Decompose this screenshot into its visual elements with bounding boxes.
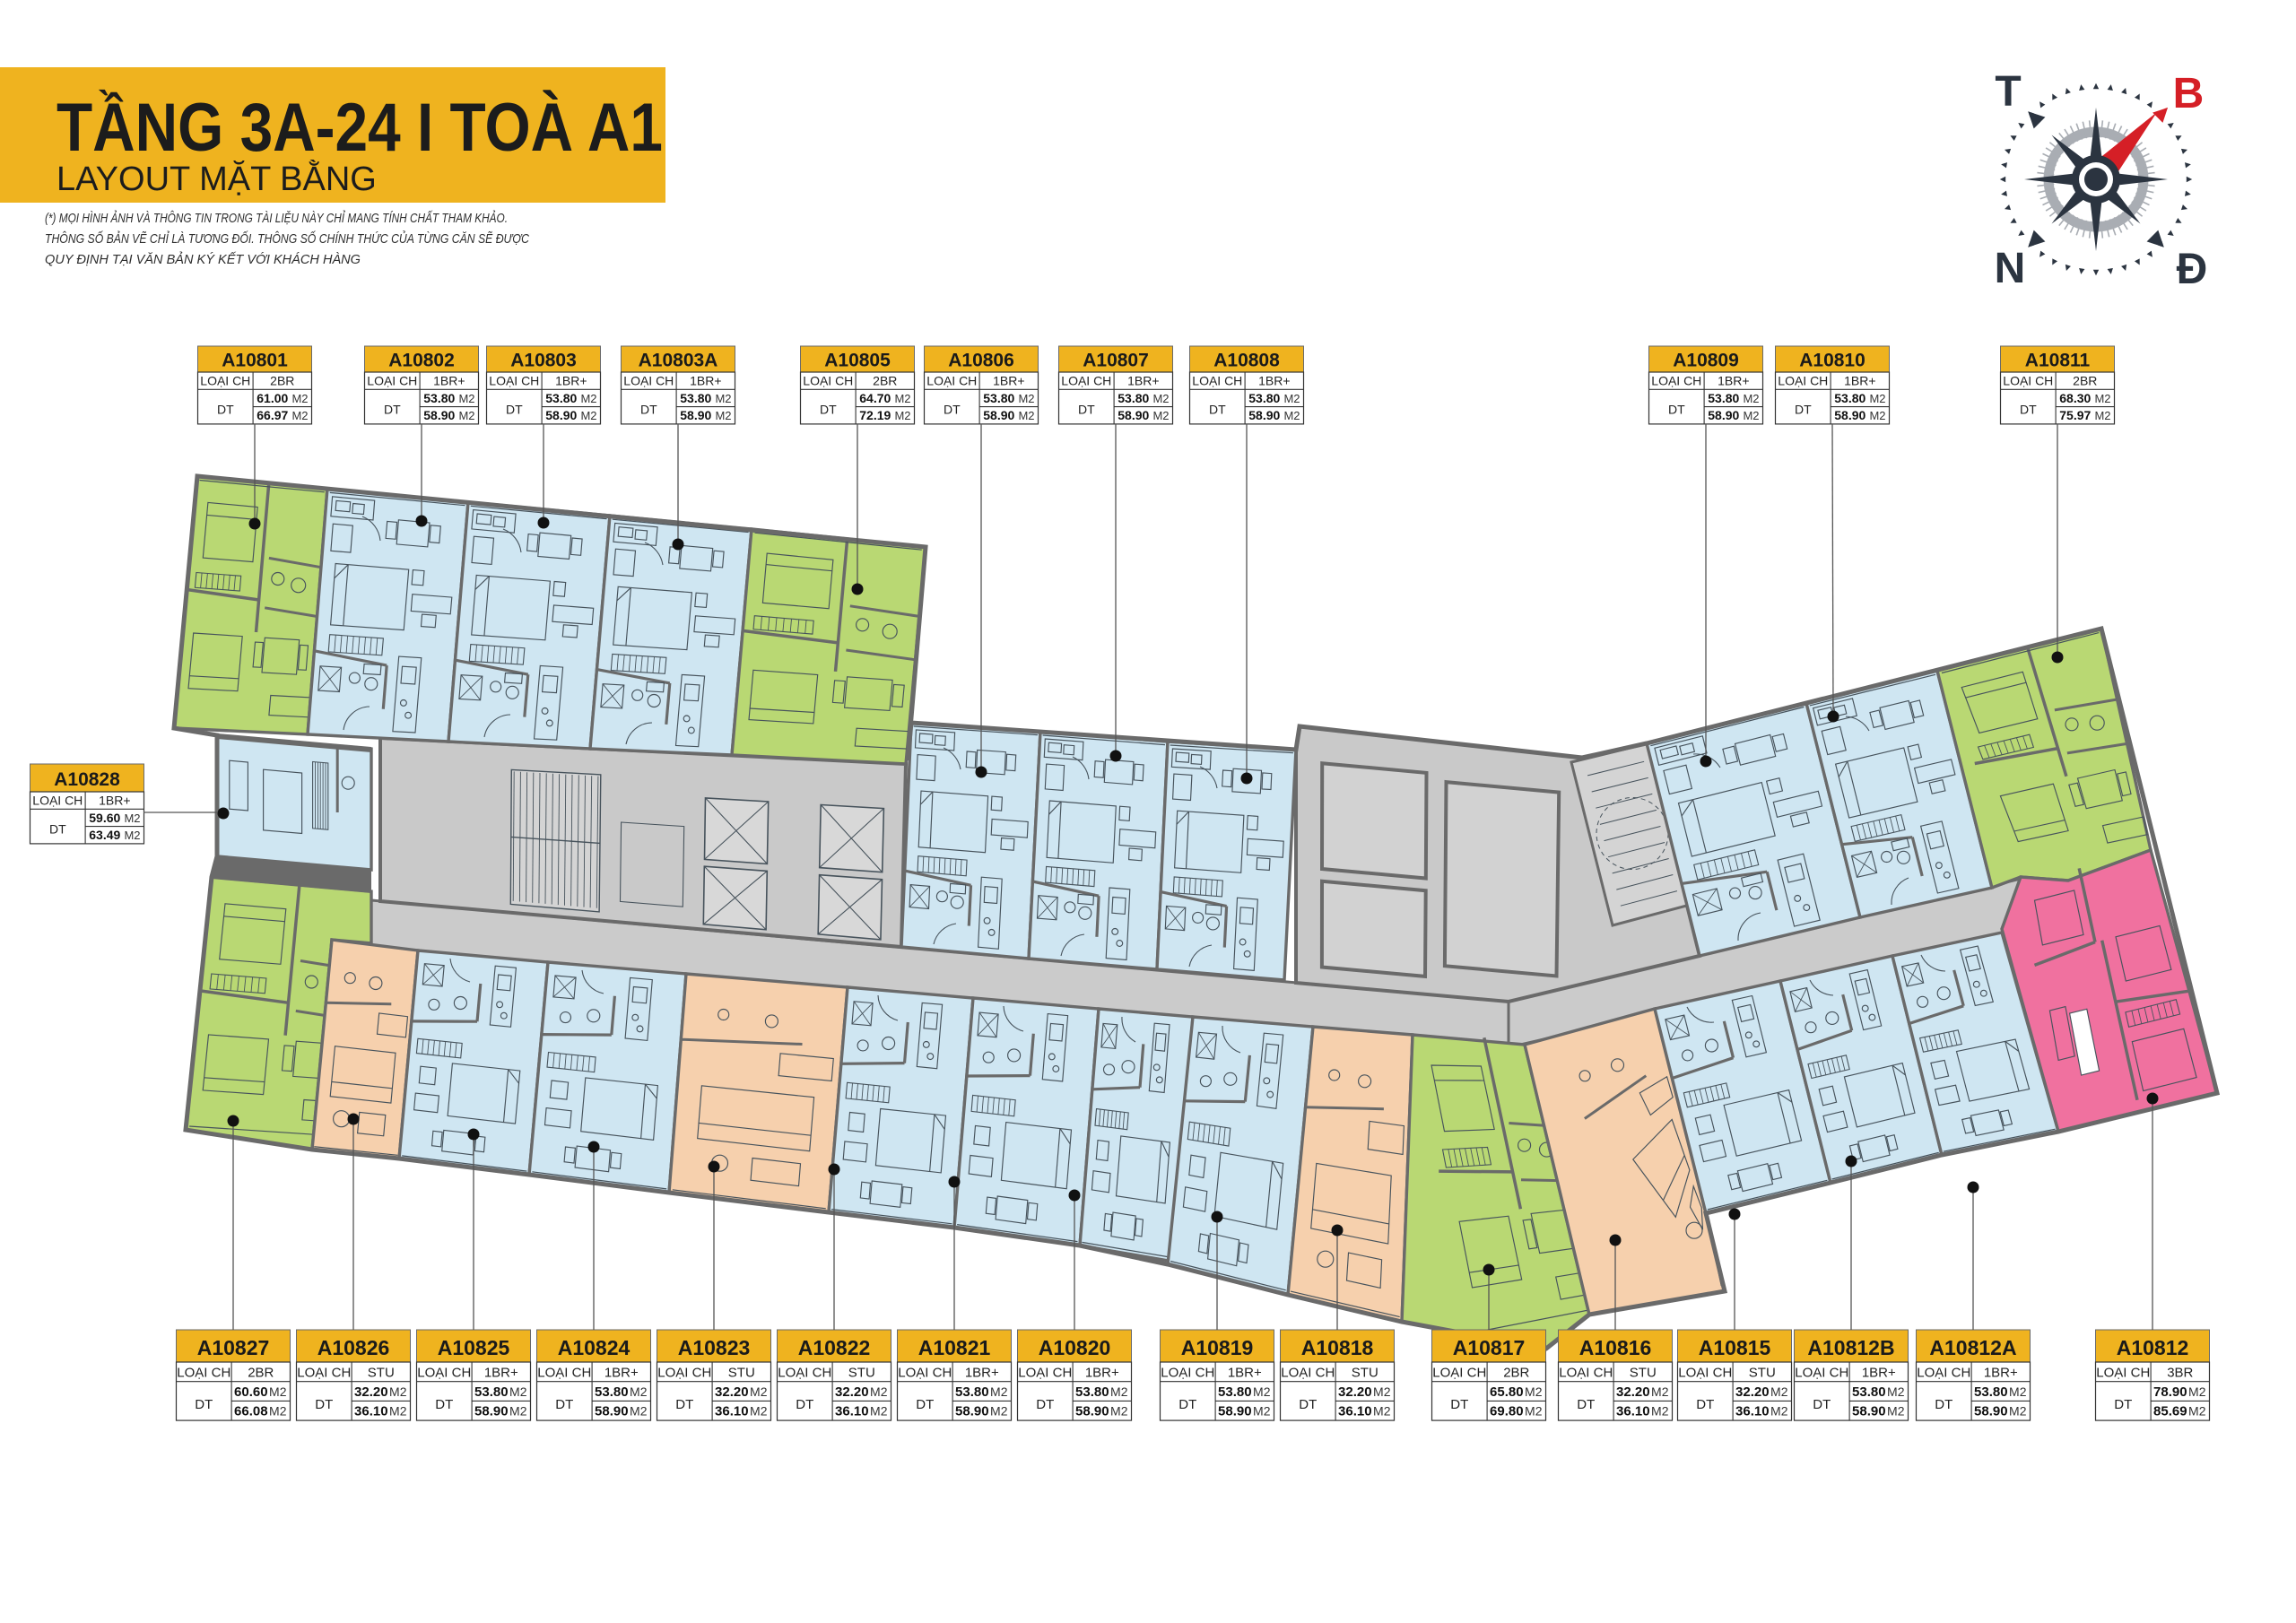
svg-text:M2: M2 [1887,1404,1905,1419]
svg-text:LOẠI CH: LOẠI CH [778,1365,831,1380]
svg-text:36.10: 36.10 [1338,1404,1372,1419]
svg-text:M2: M2 [990,1404,1008,1419]
svg-text:B: B [2173,70,2205,117]
svg-text:A10823: A10823 [678,1336,751,1359]
svg-text:LOẠI CH: LOẠI CH [1559,1365,1613,1380]
svg-text:DT: DT [506,402,523,416]
svg-text:DT: DT [2020,402,2037,416]
svg-text:DT: DT [2114,1397,2132,1412]
svg-text:M2: M2 [715,392,731,405]
svg-text:M2: M2 [1018,392,1034,405]
svg-text:M2: M2 [1651,1404,1669,1419]
svg-text:DT: DT [1795,402,1812,416]
svg-text:LOẠI CH: LOẠI CH [657,1365,711,1380]
svg-text:A10812B: A10812B [1807,1336,1894,1359]
svg-text:A10817: A10817 [1453,1336,1526,1359]
svg-text:LOẠI CH: LOẠI CH [1651,374,1701,388]
svg-text:M2: M2 [1887,1384,1905,1399]
svg-text:2BR: 2BR [248,1365,274,1380]
svg-text:53.80: 53.80 [545,391,577,405]
svg-text:1BR+: 1BR+ [993,374,1024,388]
svg-text:DT: DT [195,1397,213,1412]
svg-text:58.90: 58.90 [680,408,711,422]
svg-text:1BR+: 1BR+ [1984,1365,2018,1380]
svg-text:M2: M2 [389,1384,407,1399]
svg-text:A10812A: A10812A [1929,1336,2016,1359]
svg-text:M2: M2 [750,1404,768,1419]
svg-text:58.90: 58.90 [1708,408,1739,422]
svg-text:M2: M2 [1373,1404,1391,1419]
svg-text:M2: M2 [1110,1404,1128,1419]
svg-text:1BR+: 1BR+ [1844,374,1875,388]
svg-text:75.97: 75.97 [2059,408,2091,422]
svg-text:53.80: 53.80 [680,391,711,405]
svg-text:A10807: A10807 [1083,351,1149,371]
svg-text:M2: M2 [580,392,596,405]
svg-text:DT: DT [1209,402,1226,416]
svg-text:M2: M2 [1152,392,1169,405]
svg-text:DT: DT [1450,1397,1468,1412]
svg-text:LOẠI CH: LOẠI CH [2003,374,2053,388]
svg-text:M2: M2 [1743,392,1759,405]
svg-text:DT: DT [1696,1397,1714,1412]
svg-text:LOẠI CH: LOẠI CH [32,794,83,808]
svg-text:M2: M2 [1525,1384,1543,1399]
svg-text:M2: M2 [458,392,474,405]
svg-text:M2: M2 [894,409,910,422]
svg-text:2BR: 2BR [2073,374,2097,388]
svg-text:M2: M2 [715,409,731,422]
svg-text:STU: STU [1352,1365,1378,1380]
svg-text:LOẠI CH: LOẠI CH [623,374,674,388]
svg-text:DT: DT [384,402,401,416]
svg-text:TẦNG 3A-24 I TOÀ A1: TẦNG 3A-24 I TOÀ A1 [57,90,663,166]
svg-text:A10826: A10826 [317,1336,390,1359]
svg-text:DT: DT [820,402,837,416]
svg-text:66.97: 66.97 [257,408,288,422]
svg-text:LOẠI CH: LOẠI CH [537,1365,591,1380]
svg-text:LOẠI CH: LOẠI CH [1795,1365,1848,1380]
svg-text:69.80: 69.80 [1490,1404,1524,1419]
svg-text:M2: M2 [1869,409,1885,422]
svg-text:M2: M2 [1283,409,1300,422]
svg-text:DT: DT [555,1397,573,1412]
svg-text:M2: M2 [1018,409,1034,422]
svg-text:72.19: 72.19 [859,408,891,422]
svg-text:M2: M2 [990,1384,1008,1399]
svg-text:M2: M2 [2094,392,2110,405]
svg-text:M2: M2 [870,1384,888,1399]
svg-text:M2: M2 [1152,409,1169,422]
svg-text:M2: M2 [2094,409,2110,422]
svg-text:DT: DT [640,402,657,416]
svg-text:A10806: A10806 [948,351,1014,371]
svg-text:LOẠI CH: LOẠI CH [926,374,977,388]
svg-text:LOẠI CH: LOẠI CH [1917,1365,1970,1380]
svg-text:58.90: 58.90 [1075,1404,1109,1419]
svg-text:1BR+: 1BR+ [1127,374,1159,388]
svg-text:58.90: 58.90 [423,408,455,422]
svg-text:M2: M2 [2009,1384,2027,1399]
svg-text:1BR+: 1BR+ [1228,1365,1262,1380]
svg-text:STU: STU [1749,1365,1776,1380]
svg-text:STU: STU [1630,1365,1657,1380]
svg-text:LOẠI CH: LOẠI CH [297,1365,351,1380]
svg-text:32.20: 32.20 [1338,1384,1372,1400]
svg-text:58.90: 58.90 [955,1404,989,1419]
svg-text:3BR: 3BR [2167,1365,2193,1380]
svg-text:M2: M2 [124,829,140,842]
svg-text:M2: M2 [580,409,596,422]
svg-text:63.49: 63.49 [89,828,120,842]
svg-text:1BR+: 1BR+ [1258,374,1290,388]
svg-text:58.90: 58.90 [1218,1404,1252,1419]
svg-text:58.90: 58.90 [1852,1404,1886,1419]
svg-text:STU: STU [848,1365,875,1380]
svg-text:DT: DT [435,1397,453,1412]
svg-text:M2: M2 [870,1404,888,1419]
svg-text:LOẠI CH: LOẠI CH [367,374,417,388]
svg-text:M2: M2 [389,1404,407,1419]
svg-text:66.08: 66.08 [234,1404,268,1419]
svg-text:36.10: 36.10 [354,1404,388,1419]
svg-text:M2: M2 [269,1404,287,1419]
svg-text:53.80: 53.80 [1075,1384,1109,1400]
svg-text:LOẠI CH: LOẠI CH [1061,374,1111,388]
svg-text:2BR: 2BR [1503,1365,1529,1380]
svg-text:LOẠI CH: LOẠI CH [1192,374,1242,388]
svg-text:1BR+: 1BR+ [965,1365,999,1380]
svg-text:LOẠI CH: LOẠI CH [489,374,539,388]
svg-text:58.90: 58.90 [1248,408,1280,422]
svg-text:53.80: 53.80 [1974,1384,2008,1400]
svg-text:36.10: 36.10 [715,1404,749,1419]
svg-text:M2: M2 [630,1384,648,1399]
svg-text:53.80: 53.80 [1708,391,1739,405]
svg-text:LOẠI CH: LOẠI CH [803,374,853,388]
svg-text:A10815: A10815 [1699,1336,1771,1359]
svg-text:DT: DT [675,1397,693,1412]
svg-text:32.20: 32.20 [1616,1384,1650,1400]
svg-text:M2: M2 [2188,1404,2206,1419]
svg-text:A10803A: A10803A [639,351,718,371]
svg-text:A10818: A10818 [1301,1336,1374,1359]
svg-text:M2: M2 [291,392,308,405]
svg-text:M2: M2 [1525,1404,1543,1419]
svg-text:2BR: 2BR [270,374,294,388]
svg-text:A10803: A10803 [510,351,577,371]
svg-text:DT: DT [217,402,234,416]
svg-text:LOẠI CH: LOẠI CH [2096,1365,2150,1380]
svg-text:N: N [1995,245,2026,292]
svg-text:LOẠI CH: LOẠI CH [898,1365,952,1380]
svg-text:LOẠI CH: LOẠI CH [1778,374,1828,388]
svg-text:1BR+: 1BR+ [604,1365,639,1380]
svg-text:M2: M2 [509,1384,527,1399]
svg-text:M2: M2 [2009,1404,2027,1419]
svg-text:T: T [1995,68,2021,116]
svg-text:1BR+: 1BR+ [484,1365,518,1380]
svg-text:2BR: 2BR [873,374,897,388]
svg-text:53.80: 53.80 [1248,391,1280,405]
svg-text:LOẠI CH: LOẠI CH [1161,1365,1214,1380]
svg-text:A10802: A10802 [388,351,455,371]
svg-text:M2: M2 [291,409,308,422]
svg-text:A10824: A10824 [558,1336,631,1359]
svg-text:M2: M2 [1770,1384,1788,1399]
svg-text:M2: M2 [1770,1404,1788,1419]
svg-text:M2: M2 [630,1404,648,1419]
svg-text:A10812: A10812 [2117,1336,2189,1359]
svg-text:65.80: 65.80 [1490,1384,1524,1400]
svg-text:DT: DT [49,821,66,836]
svg-text:A10820: A10820 [1039,1336,1111,1359]
svg-text:1BR+: 1BR+ [1862,1365,1896,1380]
svg-text:1BR+: 1BR+ [690,374,721,388]
svg-text:STU: STU [368,1365,395,1380]
svg-text:64.70: 64.70 [859,391,891,405]
svg-text:A10819: A10819 [1181,1336,1254,1359]
svg-text:LOẠI CH: LOẠI CH [200,374,250,388]
svg-text:LOẠI CH: LOẠI CH [177,1365,230,1380]
svg-text:61.00: 61.00 [257,391,288,405]
svg-text:M2: M2 [1743,409,1759,422]
svg-text:M2: M2 [509,1404,527,1419]
svg-text:A10822: A10822 [798,1336,871,1359]
svg-text:A10827: A10827 [197,1336,270,1359]
svg-text:58.90: 58.90 [595,1404,629,1419]
svg-text:58.90: 58.90 [983,408,1014,422]
svg-text:53.80: 53.80 [595,1384,629,1400]
svg-text:DT: DT [796,1397,813,1412]
svg-text:32.20: 32.20 [835,1384,869,1400]
svg-text:53.80: 53.80 [955,1384,989,1400]
svg-text:DT: DT [944,402,961,416]
svg-text:LAYOUT MẶT BẰNG: LAYOUT MẶT BẰNG [57,159,377,198]
svg-text:DT: DT [1668,402,1685,416]
svg-text:M2: M2 [1283,392,1300,405]
svg-text:LOẠI CH: LOẠI CH [1432,1365,1486,1380]
svg-text:A10810: A10810 [1799,351,1865,371]
svg-text:DT: DT [1036,1397,1054,1412]
svg-text:1BR+: 1BR+ [1085,1365,1119,1380]
svg-text:LOẠI CH: LOẠI CH [1678,1365,1732,1380]
svg-text:A10811: A10811 [2025,351,2091,371]
svg-text:59.60: 59.60 [89,811,120,825]
svg-text:53.80: 53.80 [423,391,455,405]
svg-text:(*) MỌI HÌNH ẢNH VÀ THÔNG TIN: (*) MỌI HÌNH ẢNH VÀ THÔNG TIN TRONG TÀI … [45,210,508,226]
svg-text:DT: DT [916,1397,934,1412]
svg-text:1BR+: 1BR+ [99,794,130,808]
svg-text:78.90: 78.90 [2153,1384,2187,1400]
svg-text:53.80: 53.80 [1852,1384,1886,1400]
svg-text:A10828: A10828 [54,769,120,790]
svg-text:85.69: 85.69 [2153,1404,2187,1419]
svg-text:LOẠI CH: LOẠI CH [1281,1365,1335,1380]
svg-text:68.30: 68.30 [2059,391,2091,405]
svg-text:LOẠI CH: LOẠI CH [417,1365,471,1380]
svg-text:36.10: 36.10 [1616,1404,1650,1419]
svg-text:A10821: A10821 [918,1336,991,1359]
svg-text:M2: M2 [1651,1384,1669,1399]
svg-text:M2: M2 [1110,1384,1128,1399]
svg-text:1BR+: 1BR+ [1718,374,1749,388]
svg-text:1BR+: 1BR+ [433,374,465,388]
svg-text:M2: M2 [458,409,474,422]
svg-text:36.10: 36.10 [1735,1404,1770,1419]
svg-text:53.80: 53.80 [1834,391,1865,405]
svg-text:58.90: 58.90 [1118,408,1149,422]
svg-text:Đ: Đ [2177,246,2208,293]
svg-text:A10816: A10816 [1579,1336,1652,1359]
svg-text:DT: DT [315,1397,333,1412]
svg-text:A10808: A10808 [1213,351,1280,371]
svg-text:DT: DT [1078,402,1095,416]
svg-text:M2: M2 [1869,392,1885,405]
svg-text:M2: M2 [124,811,140,825]
svg-text:DT: DT [1813,1397,1831,1412]
svg-text:32.20: 32.20 [354,1384,388,1400]
svg-text:M2: M2 [1253,1404,1271,1419]
svg-text:53.80: 53.80 [1118,391,1149,405]
svg-text:58.90: 58.90 [1974,1404,2008,1419]
svg-text:QUY ĐỊNH TẠI VĂN BẢN KÝ KẾT VỚ: QUY ĐỊNH TẠI VĂN BẢN KÝ KẾT VỚI KHÁCH HÀ… [45,251,361,267]
svg-text:58.90: 58.90 [545,408,577,422]
svg-text:M2: M2 [269,1384,287,1399]
svg-text:1BR+: 1BR+ [555,374,587,388]
svg-text:M2: M2 [1373,1384,1391,1399]
svg-text:DT: DT [1935,1397,1952,1412]
svg-text:M2: M2 [894,392,910,405]
svg-text:58.90: 58.90 [1834,408,1865,422]
svg-text:60.60: 60.60 [234,1384,268,1400]
svg-text:DT: DT [1299,1397,1317,1412]
svg-text:M2: M2 [2188,1384,2206,1399]
svg-text:THÔNG SỐ BẢN VẼ CHỈ LÀ TƯƠNG Đ: THÔNG SỐ BẢN VẼ CHỈ LÀ TƯƠNG ĐỐI. THÔNG … [45,230,529,247]
svg-text:DT: DT [1577,1397,1595,1412]
svg-text:M2: M2 [750,1384,768,1399]
svg-text:A10801: A10801 [222,351,288,371]
svg-text:53.80: 53.80 [474,1384,509,1400]
svg-text:53.80: 53.80 [1218,1384,1252,1400]
svg-text:32.20: 32.20 [1735,1384,1770,1400]
svg-text:58.90: 58.90 [474,1404,509,1419]
svg-text:A10809: A10809 [1673,351,1739,371]
svg-text:LOẠI CH: LOẠI CH [1018,1365,1072,1380]
svg-text:STU: STU [728,1365,755,1380]
svg-text:A10805: A10805 [824,351,891,371]
svg-text:M2: M2 [1253,1384,1271,1399]
svg-text:32.20: 32.20 [715,1384,749,1400]
svg-text:36.10: 36.10 [835,1404,869,1419]
svg-text:53.80: 53.80 [983,391,1014,405]
svg-text:DT: DT [1178,1397,1196,1412]
svg-text:A10825: A10825 [438,1336,510,1359]
